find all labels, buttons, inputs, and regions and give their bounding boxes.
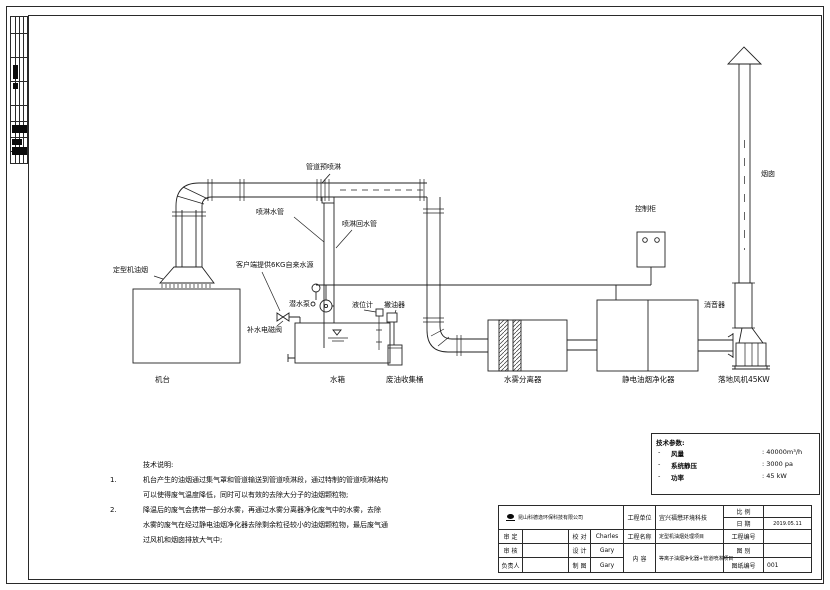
drawing-sheet: 管道预喷淋 喷淋水管 喷淋回水管 定型机油烟 客户端提供6KG自来水源 补水电磁…	[0, 0, 830, 590]
technical-notes: 技术说明: 1. 机台产生的油烟通过集气罩和管道输送到管道喷淋段，通过特制的管道…	[110, 458, 460, 548]
approver-label: 审 定	[499, 530, 523, 544]
note-line: 降温后的废气会携带一部分水雾，再通过水雾分离器净化废气中的水雾，去除	[143, 503, 388, 518]
content-label: 内 容	[624, 544, 656, 572]
checker-value: Charles	[591, 530, 624, 544]
project-unit-value: 宜兴福懋环境科技	[656, 506, 724, 530]
machine-unit	[133, 267, 240, 363]
drawer-value: Gary	[591, 558, 624, 572]
silencer-unit	[732, 283, 755, 328]
drafter-label: 负责人	[499, 558, 523, 572]
company-logo	[506, 514, 515, 522]
note-item: 1. 机台产生的油烟通过集气罩和管道输送到管道喷淋段，通过特制的管道喷淋结构 可…	[110, 473, 460, 503]
connector-pipes	[567, 340, 733, 351]
chimney-stack	[728, 47, 761, 283]
drop-duct	[423, 197, 488, 356]
approver-value	[523, 530, 569, 544]
company-cell: 昆山科德逸环保科技有限公司	[499, 506, 624, 530]
control-cabinet-label: 控制柜	[635, 205, 656, 214]
oil-skimmer-assembly	[387, 310, 397, 345]
drawing-type-label: 图 别	[724, 544, 764, 558]
note-line: 水雾的废气在经过静电油烟净化器去除剩余粒径较小的油烟颗粒物，最后废气通	[143, 518, 388, 533]
designer-value: Gary	[591, 544, 624, 558]
water-source-label: 客户端提供6KG自来水源	[236, 261, 313, 270]
mist-separator-label: 水雾分离器	[504, 375, 542, 384]
tech-params-title: 技术参数:	[656, 437, 685, 447]
date-label: 日 期	[724, 518, 764, 530]
pump-assembly	[311, 284, 334, 312]
drain-line	[316, 267, 651, 300]
spray-water-pipe-label: 喷淋水管	[256, 208, 284, 217]
silencer-label: 消音器	[704, 301, 725, 310]
fan-label: 落地风机45KW	[718, 375, 770, 384]
param-name: 功率	[671, 472, 684, 482]
oil-skimmer-label: 撇油器	[384, 301, 405, 310]
checker-label: 校 对	[569, 530, 591, 544]
tech-params-box: 技术参数: - 风量 : 40000m³/h - 系统静压 : 3000 pa …	[651, 433, 820, 495]
project-name-value: 定型机油烟处理项目	[656, 530, 724, 544]
reviewer-label: 审 核	[499, 544, 523, 558]
param-dash: -	[658, 460, 660, 468]
spray-section	[317, 174, 334, 203]
chimney-label: 烟囱	[761, 170, 775, 179]
label-leaders	[154, 276, 163, 279]
note-number: 2.	[110, 503, 143, 548]
scale-value	[764, 506, 811, 518]
machine-fume-label: 定型机油烟	[113, 266, 148, 275]
water-supply	[262, 272, 300, 326]
project-unit-label: 工程单位	[624, 506, 656, 530]
content-value: 等离子油烟净化器+管道喷淋项目	[656, 544, 724, 572]
fan-unit	[728, 328, 770, 369]
drafter-value	[523, 558, 569, 572]
note-item: 2. 降温后的废气会携带一部分水雾，再通过水雾分离器净化废气中的水雾，去除 水雾…	[110, 503, 460, 548]
param-dash: -	[658, 472, 660, 480]
reviewer-value	[523, 544, 569, 558]
note-line: 过风机和烟囱排放大气中;	[143, 533, 388, 548]
mist-separator-unit	[488, 320, 567, 371]
designer-label: 设 计	[569, 544, 591, 558]
level-gauge-label: 液位计	[352, 301, 373, 310]
project-no-value	[764, 530, 811, 544]
note-line: 机台产生的油烟通过集气罩和管道输送到管道喷淋段，通过特制的管道喷淋结构	[143, 473, 388, 488]
company-name: 昆山科德逸环保科技有限公司	[518, 514, 583, 521]
water-tank	[288, 323, 390, 363]
param-name: 系统静压	[671, 460, 697, 470]
submersible-pump-label: 潜水泵	[289, 300, 310, 309]
drawing-no-value: 001	[764, 558, 811, 572]
param-dash: -	[658, 448, 660, 456]
scale-label: 比 例	[724, 506, 764, 518]
note-number: 1.	[110, 473, 143, 503]
drawing-no-label: 图纸编号	[724, 558, 764, 572]
project-name-label: 工程名称	[624, 530, 656, 544]
pipe-pre-spray-label: 管道预喷淋	[306, 163, 341, 172]
level-gauge-assembly	[364, 309, 383, 350]
date-value: 2019.05.11	[764, 518, 811, 530]
drawing-type-value	[764, 544, 811, 558]
param-name: 风量	[671, 448, 684, 458]
notes-title: 技术说明:	[110, 458, 460, 473]
param-value: : 40000m³/h	[762, 448, 802, 456]
title-block: 昆山科德逸环保科技有限公司 工程单位 宜兴福懋环境科技 比 例 日 期 2019…	[498, 505, 812, 573]
machine-label: 机台	[155, 375, 170, 384]
water-tank-label: 水箱	[330, 375, 345, 384]
param-value: : 45 kW	[762, 472, 787, 480]
makeup-valve-label: 补水电磁阀	[247, 326, 282, 335]
waste-oil-barrel-label: 废油收集桶	[386, 375, 424, 384]
exhaust-duct	[172, 179, 427, 267]
esp-unit	[597, 300, 698, 371]
drawer-label: 制 图	[569, 558, 591, 572]
param-value: : 3000 pa	[762, 460, 793, 468]
note-line: 可以使得废气温度降低，同时可以有效的去除大分子的油烟颗粒物;	[143, 488, 388, 503]
spray-return-pipe-label: 喷淋回水管	[342, 220, 377, 229]
esp-label: 静电油烟净化器	[622, 375, 675, 384]
control-cabinet-unit	[637, 232, 665, 267]
project-no-label: 工程编号	[724, 530, 764, 544]
